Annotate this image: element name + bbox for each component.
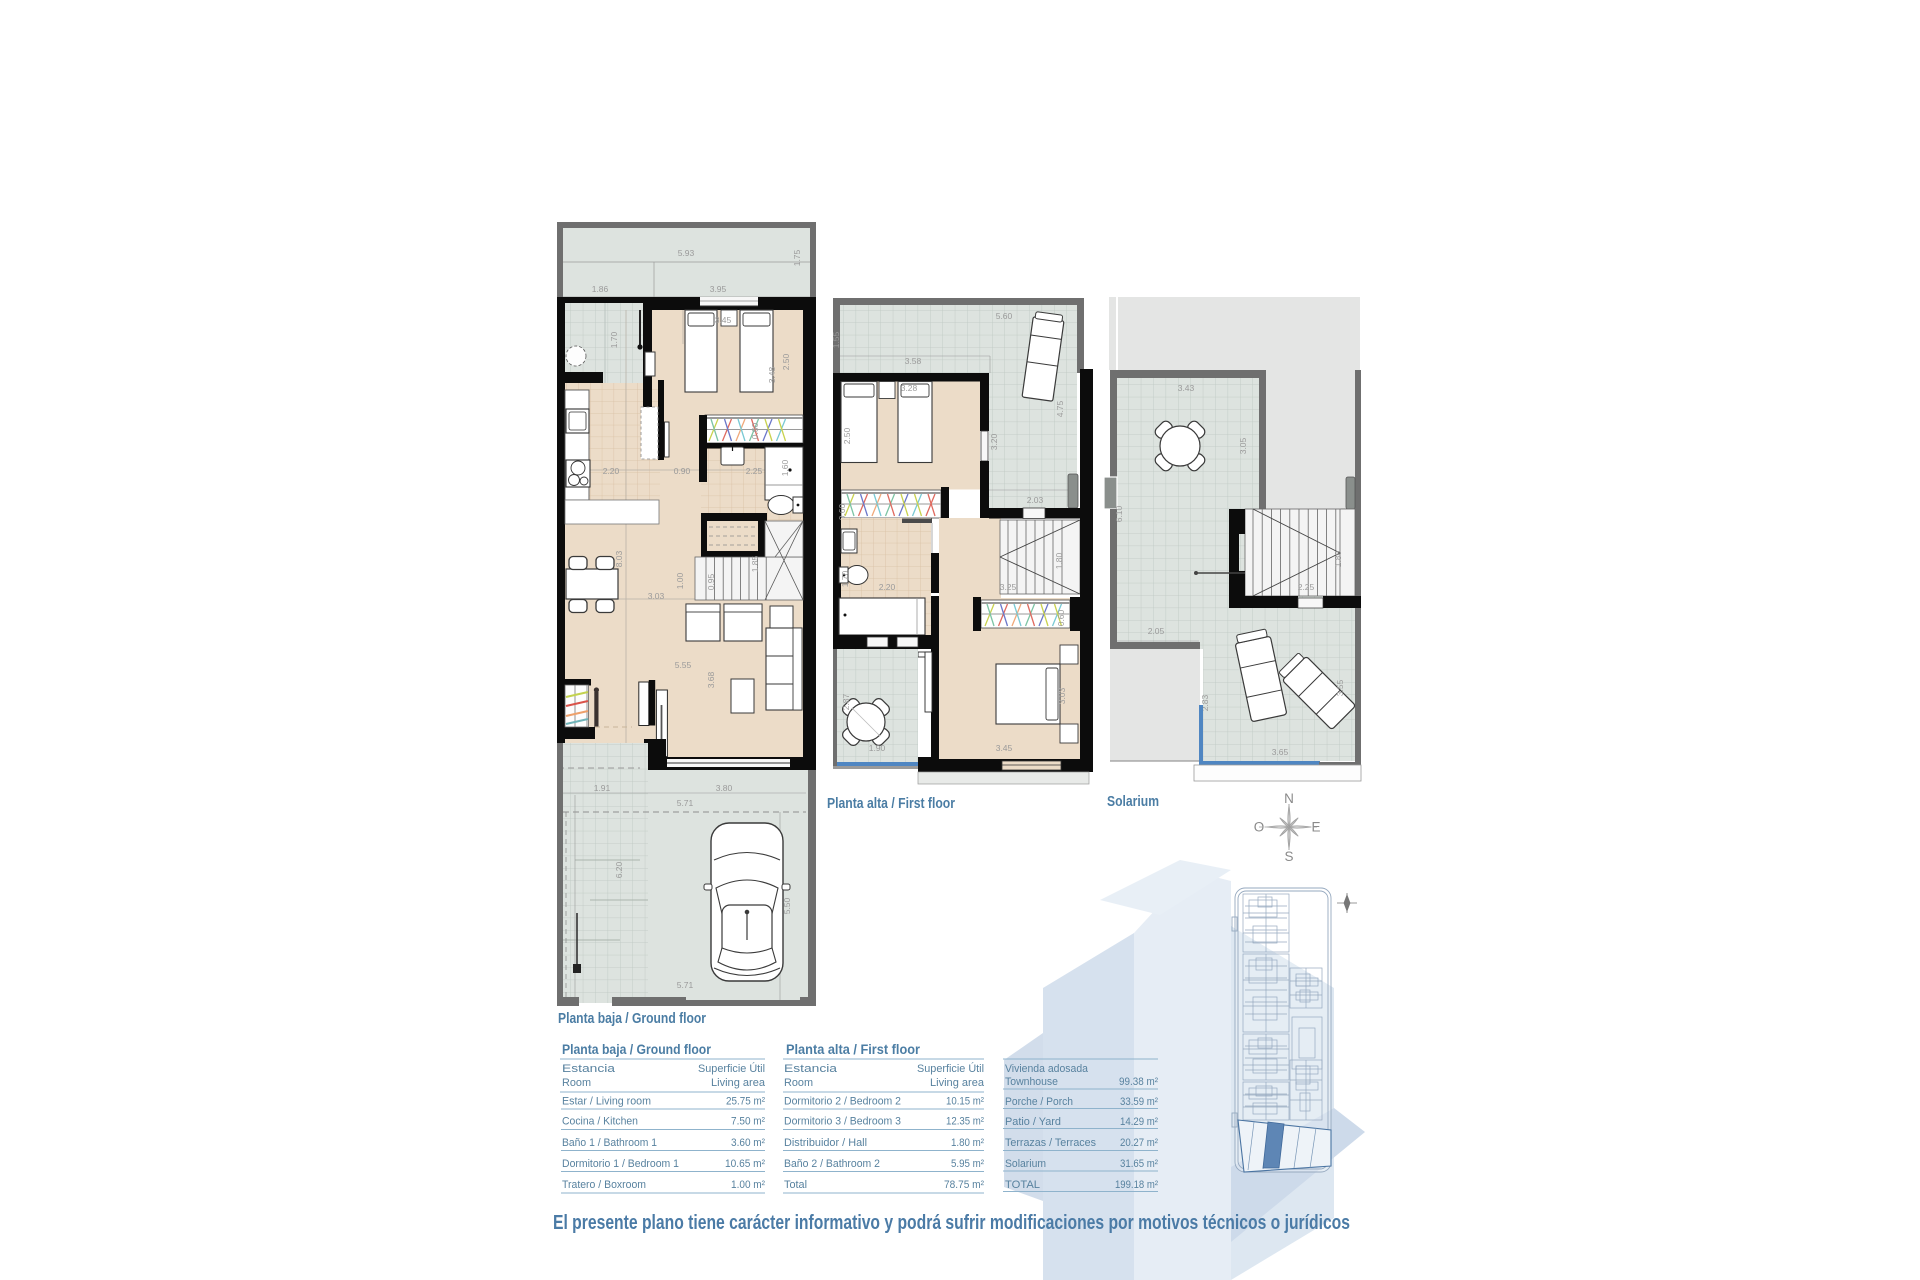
svg-text:3.05: 3.05 [1238,437,1248,454]
svg-text:3.55: 3.55 [1335,679,1345,696]
svg-text:3.20: 3.20 [989,433,999,450]
svg-text:3.25: 3.25 [1000,582,1017,592]
svg-text:3.58: 3.58 [905,356,922,366]
svg-text:1.90: 1.90 [869,743,886,753]
svg-text:Solarium: Solarium [1107,794,1159,810]
svg-text:3.28: 3.28 [901,383,918,393]
svg-text:E: E [1311,820,1320,835]
svg-text:2.87: 2.87 [841,693,851,710]
svg-text:Townhouse: Townhouse [1005,1076,1058,1088]
svg-text:Baño 2 / Bathroom 2: Baño 2 / Bathroom 2 [784,1158,880,1170]
svg-text:2.25: 2.25 [746,466,763,476]
svg-text:Superficie Útil: Superficie Útil [698,1062,765,1075]
svg-text:2.25: 2.25 [1298,582,1315,592]
svg-text:Living area: Living area [930,1077,985,1089]
svg-text:1.60: 1.60 [780,459,790,476]
svg-text:1.55: 1.55 [831,331,841,348]
svg-text:Patio / Yard: Patio / Yard [1005,1116,1061,1128]
svg-text:5.95 m²: 5.95 m² [951,1158,984,1170]
svg-text:Living area: Living area [711,1077,766,1089]
svg-text:Dormitorio 2 / Bedroom 2: Dormitorio 2 / Bedroom 2 [784,1096,901,1108]
svg-text:S: S [1284,849,1293,864]
svg-text:3.60 m²: 3.60 m² [731,1137,765,1149]
svg-text:10.15 m²: 10.15 m² [946,1096,984,1108]
svg-text:Distribuidor / Hall: Distribuidor / Hall [784,1137,867,1149]
svg-text:Total: Total [784,1179,807,1191]
svg-text:1.70: 1.70 [840,570,850,587]
svg-text:5.71: 5.71 [677,980,694,990]
svg-text:0.60: 0.60 [837,503,847,520]
svg-text:2.50: 2.50 [781,353,791,370]
svg-text:33.59 m²: 33.59 m² [1120,1096,1158,1108]
svg-text:Porche / Porch: Porche / Porch [1005,1096,1073,1108]
svg-text:3.03: 3.03 [648,591,665,601]
svg-text:31.65 m²: 31.65 m² [1120,1158,1158,1170]
svg-text:6.10: 6.10 [1114,505,1124,522]
svg-text:4.75: 4.75 [1055,400,1065,417]
svg-text:Estancia: Estancia [784,1063,838,1075]
svg-text:Estancia: Estancia [562,1063,616,1075]
svg-text:1.80: 1.80 [1333,550,1343,567]
svg-text:1.80 m²: 1.80 m² [951,1137,984,1149]
svg-text:1.91: 1.91 [594,783,611,793]
svg-text:3.43: 3.43 [1178,383,1195,393]
svg-text:12.35 m²: 12.35 m² [946,1116,984,1128]
svg-text:Cocina / Kitchen: Cocina / Kitchen [562,1116,638,1128]
svg-text:5.93: 5.93 [678,248,695,258]
svg-text:Planta alta / First floor: Planta alta / First floor [827,796,955,812]
svg-text:0.95: 0.95 [706,573,716,590]
svg-text:3.65: 3.65 [1272,747,1289,757]
svg-text:N: N [1284,791,1294,806]
svg-text:Baño 1 / Bathroom 1: Baño 1 / Bathroom 1 [562,1137,657,1149]
svg-text:2.20: 2.20 [879,582,896,592]
svg-text:2.03: 2.03 [1027,495,1044,505]
svg-text:Tratero / Boxroom: Tratero / Boxroom [562,1179,646,1191]
svg-text:3.03: 3.03 [1057,687,1067,704]
svg-text:1.85: 1.85 [750,555,760,572]
svg-text:1.00: 1.00 [675,572,685,589]
svg-text:Superficie Útil: Superficie Útil [917,1062,984,1075]
svg-text:El presente plano tiene caráct: El presente plano tiene carácter informa… [553,1211,1350,1234]
svg-text:Planta baja / Ground floor: Planta baja / Ground floor [558,1011,706,1027]
svg-text:Room: Room [784,1077,813,1089]
svg-text:3.45: 3.45 [715,315,732,325]
svg-text:Estar / Living room: Estar / Living room [562,1096,651,1108]
svg-text:Planta baja / Ground floor: Planta baja / Ground floor [562,1042,712,1057]
svg-text:3.80: 3.80 [716,783,733,793]
svg-text:TOTAL: TOTAL [1005,1179,1040,1191]
svg-text:0.60: 0.60 [1056,609,1066,626]
svg-text:1.70: 1.70 [609,331,619,348]
svg-text:Dormitorio 1 / Bedroom 1: Dormitorio 1 / Bedroom 1 [562,1158,679,1170]
svg-text:7.50 m²: 7.50 m² [731,1116,765,1128]
svg-text:199.18 m²: 199.18 m² [1115,1179,1158,1191]
svg-text:20.27 m²: 20.27 m² [1120,1137,1158,1149]
svg-text:Terrazas / Terraces: Terrazas / Terraces [1005,1137,1096,1149]
svg-text:3.48: 3.48 [767,366,777,383]
svg-text:2.50: 2.50 [842,427,852,444]
svg-text:5.71: 5.71 [677,798,694,808]
svg-text:10.65 m²: 10.65 m² [725,1158,765,1170]
svg-text:Room: Room [562,1077,591,1089]
svg-text:3.68: 3.68 [706,671,716,688]
svg-text:3.45: 3.45 [996,743,1013,753]
svg-text:Planta alta / First floor: Planta alta / First floor [786,1042,921,1057]
svg-text:2.20: 2.20 [603,466,620,476]
svg-text:1.80: 1.80 [1054,552,1064,569]
svg-text:Dormitorio 3 / Bedroom 3: Dormitorio 3 / Bedroom 3 [784,1116,901,1128]
svg-text:99.38 m²: 99.38 m² [1119,1076,1158,1088]
svg-text:5.60: 5.60 [996,311,1013,321]
svg-text:0.60: 0.60 [750,422,760,439]
svg-text:1.00 m²: 1.00 m² [731,1179,765,1191]
svg-text:Solarium: Solarium [1005,1158,1046,1170]
svg-text:Vivienda adosada: Vivienda adosada [1005,1063,1089,1075]
svg-text:3.95: 3.95 [710,284,727,294]
svg-text:25.75 m²: 25.75 m² [726,1096,765,1108]
svg-text:6.20: 6.20 [614,861,624,878]
svg-text:0.90: 0.90 [674,466,691,476]
svg-text:1.86: 1.86 [592,284,609,294]
svg-text:O: O [1254,820,1265,835]
svg-text:1.75: 1.75 [792,249,802,266]
svg-text:8.03: 8.03 [614,550,624,567]
svg-text:78.75 m²: 78.75 m² [944,1179,984,1191]
svg-text:2.05: 2.05 [1148,626,1165,636]
svg-text:14.29 m²: 14.29 m² [1120,1116,1158,1128]
svg-text:5.55: 5.55 [675,660,692,670]
